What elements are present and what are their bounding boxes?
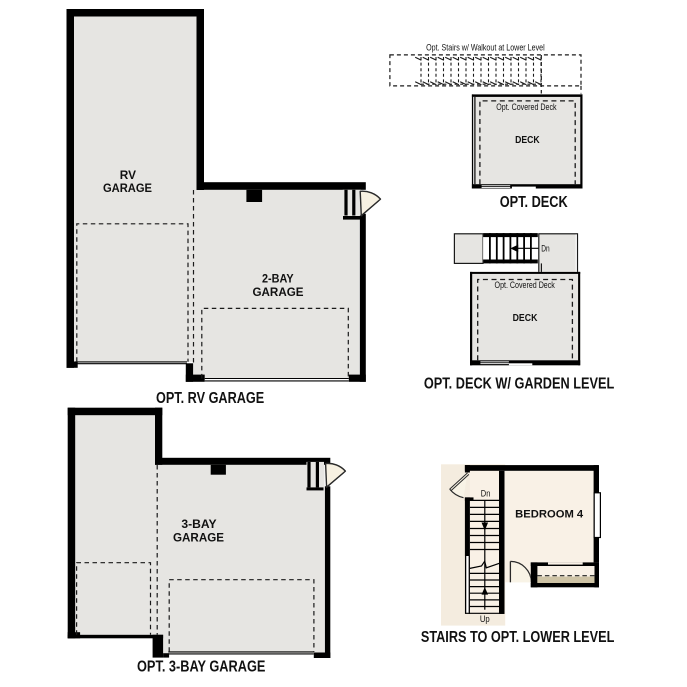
svg-text:GARAGE: GARAGE — [103, 183, 152, 195]
svg-text:BEDROOM 4: BEDROOM 4 — [515, 509, 584, 521]
svg-text:Up: Up — [480, 614, 490, 624]
svg-text:OPT. DECK: OPT. DECK — [500, 194, 569, 211]
svg-text:Dn: Dn — [481, 489, 491, 499]
svg-text:GARAGE: GARAGE — [253, 287, 304, 299]
svg-text:Opt. Covered Deck: Opt. Covered Deck — [496, 102, 557, 112]
svg-text:DECK: DECK — [513, 313, 538, 324]
svg-text:Dn: Dn — [541, 243, 549, 253]
svg-text:STAIRS TO OPT. LOWER LEVEL: STAIRS TO OPT. LOWER LEVEL — [421, 629, 615, 646]
svg-text:3-BAY: 3-BAY — [181, 519, 217, 531]
svg-text:GARAGE: GARAGE — [173, 532, 224, 544]
svg-text:Opt. Stairs w/ Walkout at Lowe: Opt. Stairs w/ Walkout at Lower Level — [426, 42, 545, 52]
svg-text:OPT. RV GARAGE: OPT. RV GARAGE — [156, 390, 264, 407]
svg-text:OPT. DECK W/ GARDEN LEVEL: OPT. DECK W/ GARDEN LEVEL — [424, 375, 614, 392]
svg-text:DECK: DECK — [515, 135, 540, 146]
svg-text:RV: RV — [120, 170, 137, 182]
svg-text:OPT. 3-BAY GARAGE: OPT. 3-BAY GARAGE — [137, 658, 265, 675]
svg-text:2-BAY: 2-BAY — [262, 274, 294, 286]
svg-text:Opt. Covered Deck: Opt. Covered Deck — [495, 280, 556, 290]
